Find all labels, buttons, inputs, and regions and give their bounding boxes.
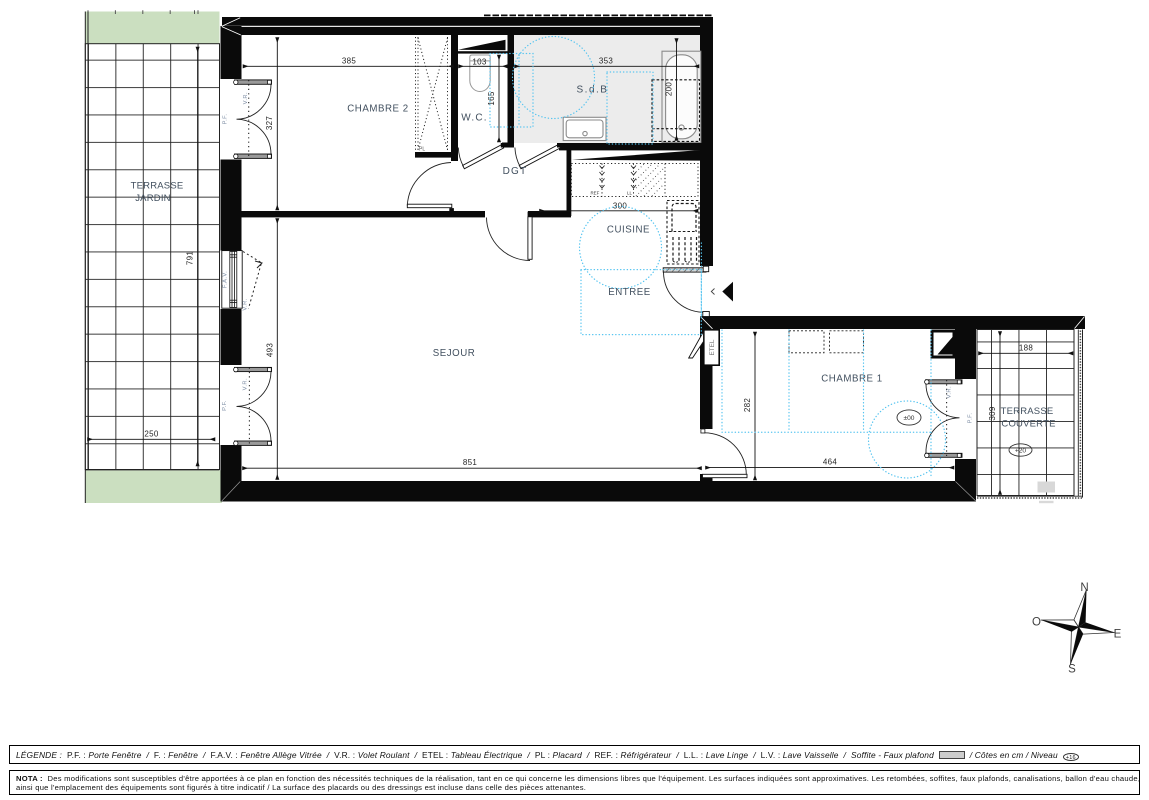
svg-text:ENTREE: ENTREE	[608, 287, 651, 298]
svg-text:165: 165	[487, 91, 496, 105]
svg-text:LL: LL	[627, 191, 632, 196]
svg-text:JARDIN: JARDIN	[135, 193, 171, 204]
svg-text:TERRASSE: TERRASSE	[1001, 406, 1054, 417]
svg-text:V.R.: V.R.	[243, 378, 249, 390]
svg-text:V.R.: V.R.	[243, 92, 249, 104]
svg-text:353: 353	[599, 57, 613, 66]
svg-text:P.F.: P.F.	[222, 400, 228, 411]
svg-text:+20: +20	[1015, 447, 1027, 454]
svg-text:TERRASSE: TERRASSE	[131, 181, 184, 192]
svg-text:309: 309	[988, 406, 997, 420]
svg-text:851: 851	[463, 458, 477, 467]
svg-text:F.A.V.: F.A.V.	[222, 271, 228, 288]
svg-text:±00: ±00	[904, 415, 915, 422]
svg-text:282: 282	[743, 398, 752, 412]
svg-text:DGT: DGT	[503, 166, 528, 177]
svg-text:385: 385	[342, 57, 356, 66]
svg-text:CUISINE: CUISINE	[607, 225, 650, 236]
svg-text:CHAMBRE 2: CHAMBRE 2	[347, 103, 408, 114]
svg-text:P.F.: P.F.	[968, 413, 974, 424]
svg-text:327: 327	[265, 116, 274, 130]
svg-text:V.R.: V.R.	[947, 386, 953, 398]
svg-text:188: 188	[1019, 344, 1033, 353]
svg-text:W.C.: W.C.	[461, 113, 487, 124]
svg-text:O: O	[1032, 617, 1041, 629]
svg-text:P.F.: P.F.	[223, 114, 229, 125]
svg-text:V.R.: V.R.	[243, 298, 249, 310]
svg-text:REF: REF	[591, 191, 600, 196]
svg-text:103: 103	[472, 57, 486, 66]
svg-text:ETEL: ETEL	[709, 339, 716, 355]
svg-text:791: 791	[186, 251, 195, 265]
svg-text:300: 300	[613, 202, 627, 211]
svg-text:N: N	[1080, 582, 1088, 594]
svg-text:250: 250	[144, 429, 158, 438]
svg-text:SEJOUR: SEJOUR	[433, 348, 476, 359]
svg-text:464: 464	[823, 457, 837, 466]
svg-text:E: E	[1114, 629, 1122, 641]
svg-text:COUVERTE: COUVERTE	[1001, 419, 1055, 430]
svg-text:200: 200	[665, 82, 674, 96]
svg-text:S: S	[1068, 664, 1076, 676]
svg-text:PL: PL	[419, 147, 425, 153]
svg-text:493: 493	[266, 343, 275, 357]
svg-text:CHAMBRE 1: CHAMBRE 1	[821, 373, 882, 384]
